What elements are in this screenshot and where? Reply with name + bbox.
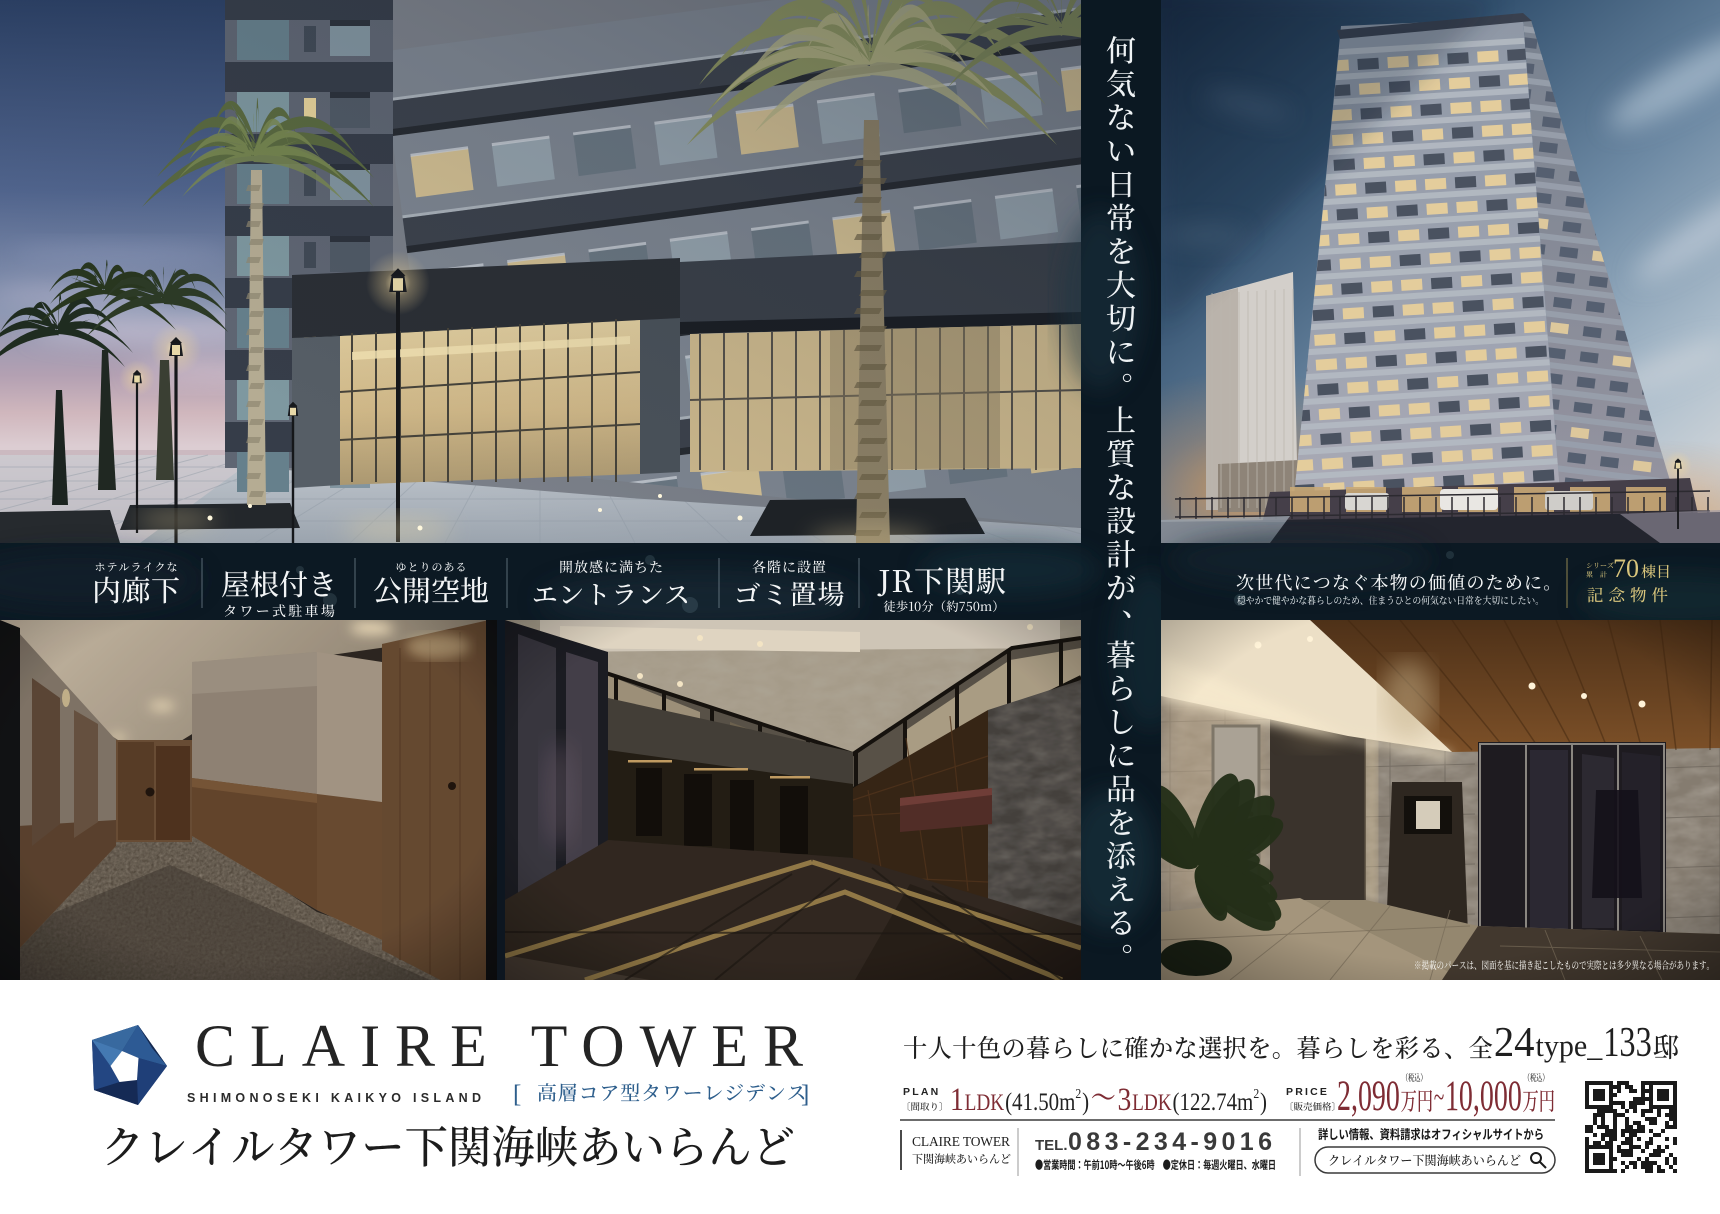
svg-text:LDK: LDK <box>965 1089 1005 1115</box>
svg-text:): ) <box>1082 1087 1089 1115</box>
svg-text:1: 1 <box>950 1081 964 1118</box>
svg-text:PRICE: PRICE <box>1286 1086 1329 1098</box>
svg-text:2: 2 <box>1075 1086 1081 1101</box>
svg-text:PLAN: PLAN <box>903 1086 940 1098</box>
svg-text:2,090: 2,090 <box>1337 1072 1400 1119</box>
svg-text:]: ] <box>801 1081 809 1108</box>
svg-text:TEL.: TEL. <box>1035 1137 1068 1154</box>
svg-text:(122.74m: (122.74m <box>1173 1087 1254 1115</box>
svg-text:[: [ <box>513 1081 521 1108</box>
svg-text:type_: type_ <box>1536 1029 1603 1064</box>
svg-text:24: 24 <box>1494 1018 1535 1065</box>
svg-text:(41.50m: (41.50m <box>1005 1087 1075 1115</box>
svg-text:LDK: LDK <box>1132 1089 1172 1115</box>
svg-text:CLAIRE TOWER: CLAIRE TOWER <box>912 1134 1010 1149</box>
svg-text:70: 70 <box>1613 554 1639 583</box>
svg-text:3: 3 <box>1117 1081 1131 1118</box>
svg-text:SHIMONOSEKI KAIKYO ISLAND: SHIMONOSEKI KAIKYO ISLAND <box>187 1091 481 1105</box>
svg-text:133: 133 <box>1603 1018 1652 1065</box>
svg-text:2: 2 <box>1253 1086 1259 1101</box>
svg-text:): ) <box>1260 1087 1267 1115</box>
svg-text:~: ~ <box>1434 1081 1445 1114</box>
svg-text:10,000: 10,000 <box>1445 1072 1522 1119</box>
